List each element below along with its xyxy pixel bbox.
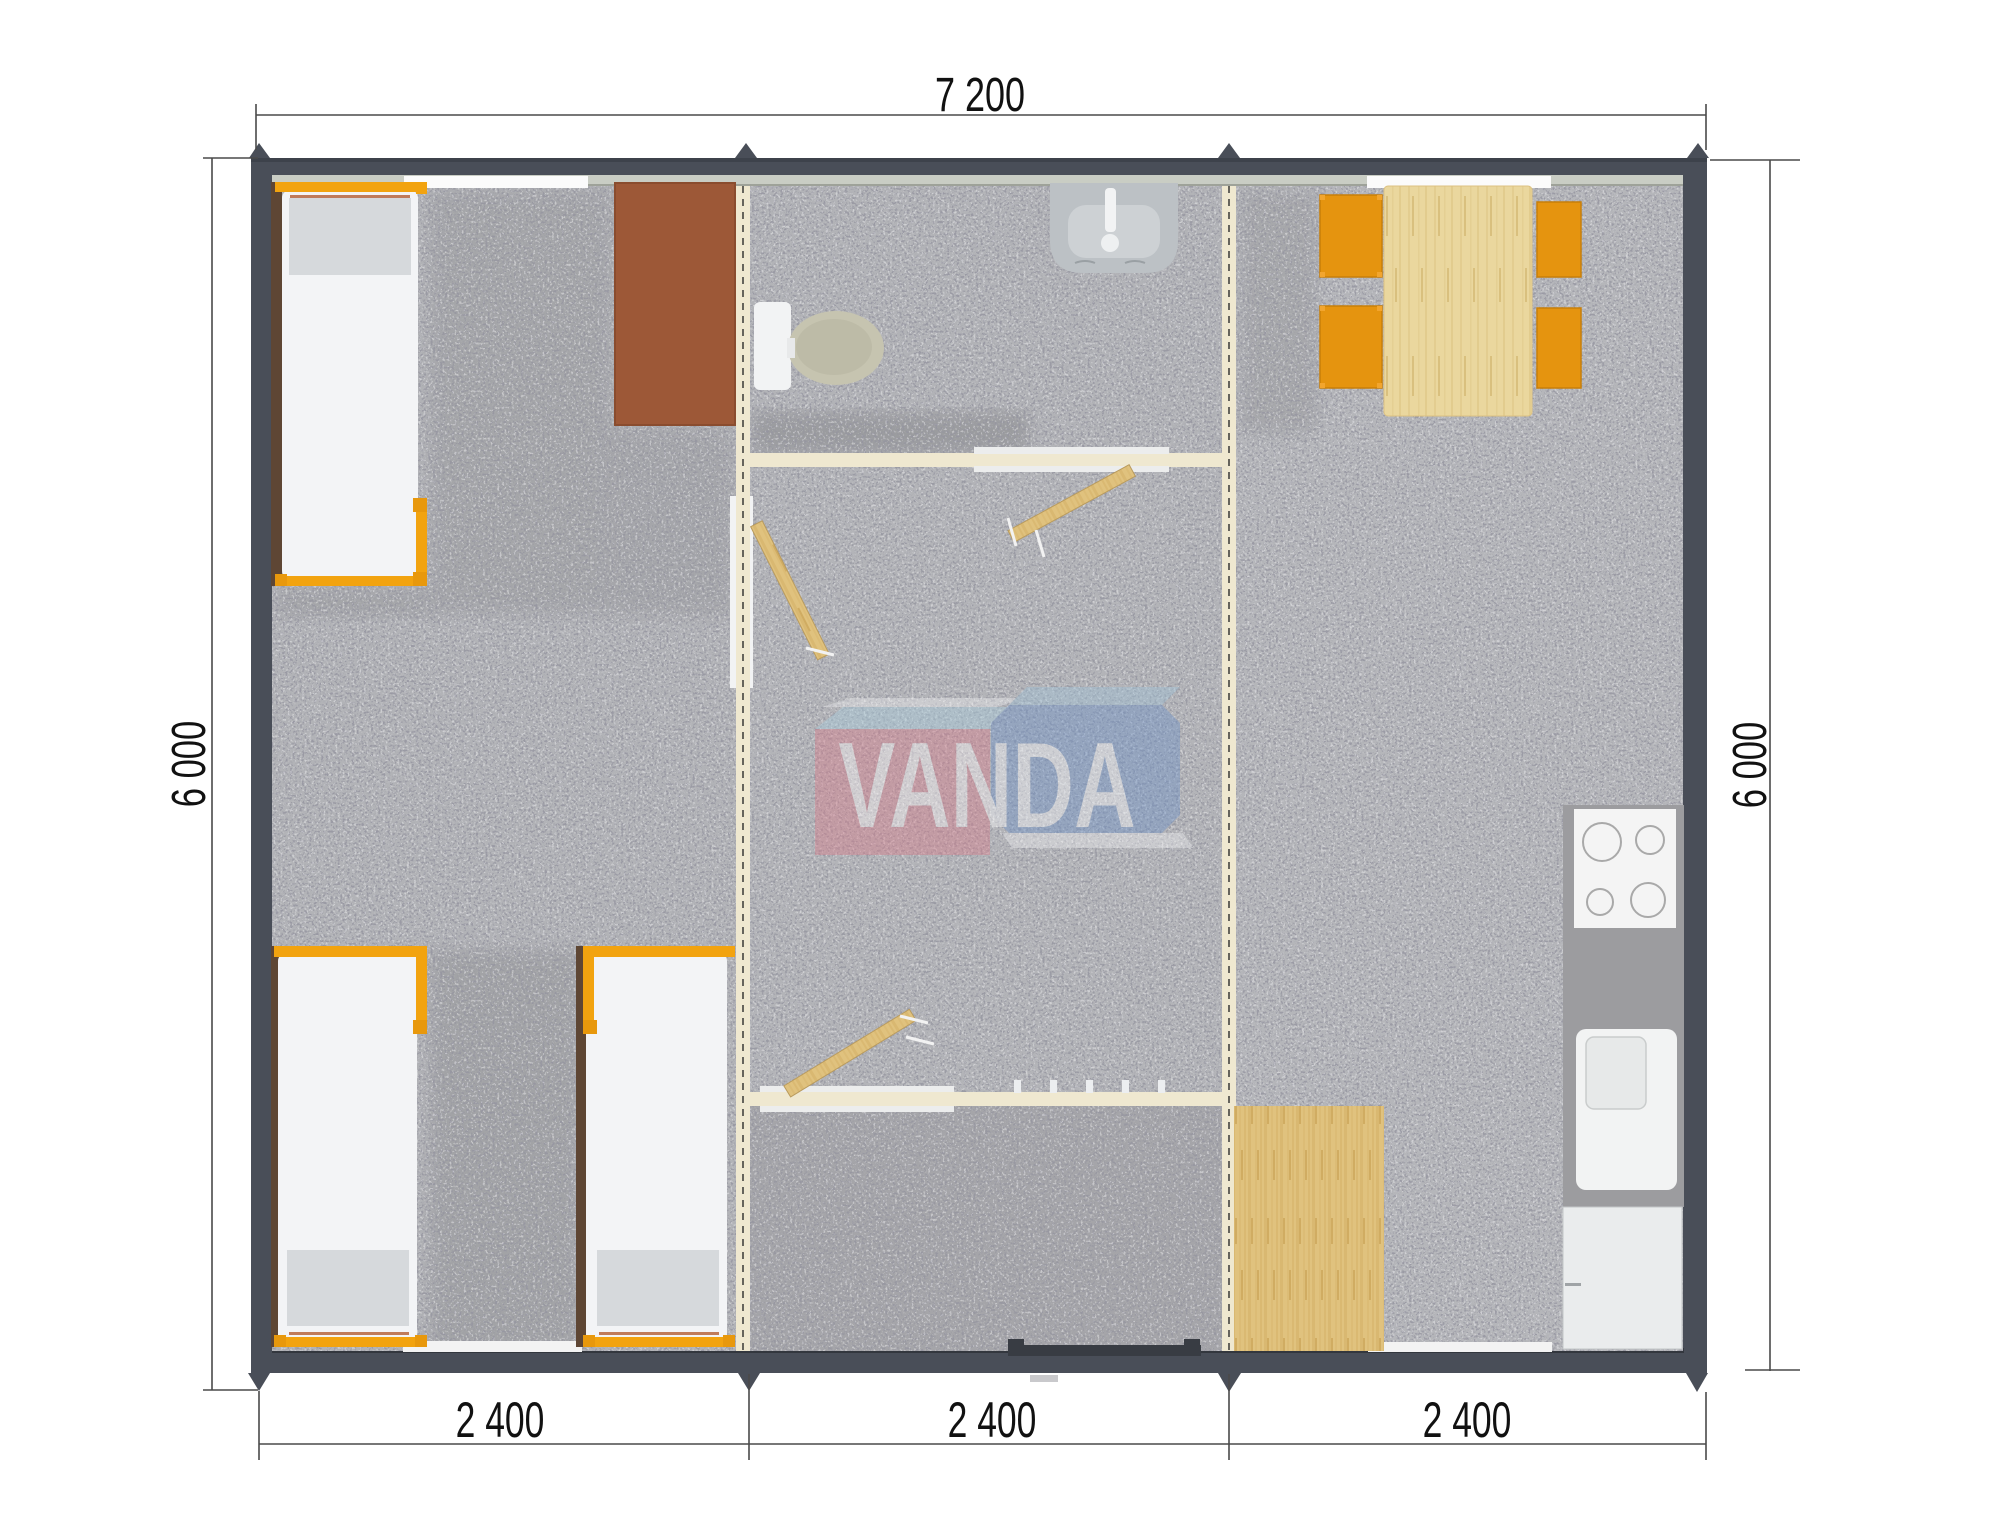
svg-text:7 200: 7 200 [935, 68, 1025, 121]
svg-text:6 000: 6 000 [161, 721, 215, 807]
svg-text:6 000: 6 000 [1722, 722, 1776, 808]
svg-text:VANDA: VANDA [838, 718, 1135, 854]
svg-text:2 400: 2 400 [948, 1393, 1037, 1448]
svg-text:2 400: 2 400 [456, 1393, 545, 1448]
svg-text:2 400: 2 400 [1423, 1393, 1512, 1448]
